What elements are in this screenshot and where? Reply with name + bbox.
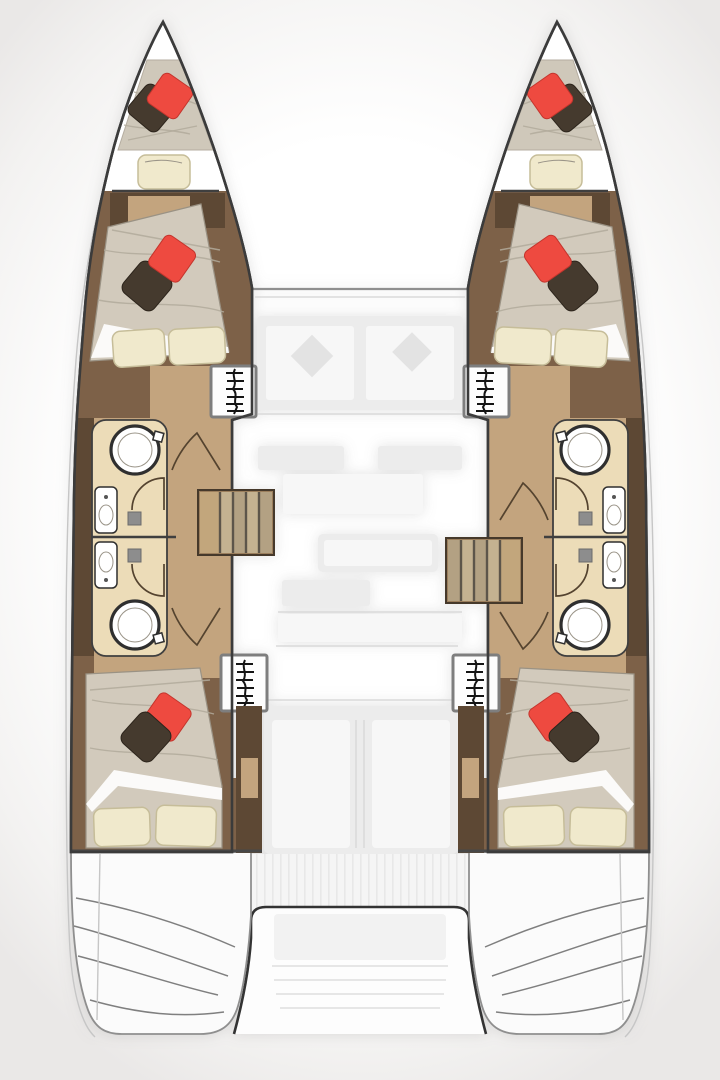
saloon-ghost <box>258 446 462 646</box>
forward-companionway-hatch <box>211 366 256 417</box>
aft-bench-ghost <box>274 914 446 960</box>
catamaran-floorplan: Catamaran interior layout floor plan, to… <box>0 0 720 1080</box>
cream-pillow <box>155 805 216 847</box>
shower-control <box>153 633 164 644</box>
port-stairs-to-saloon <box>198 490 274 555</box>
starboard-stairs-to-saloon <box>446 538 522 603</box>
cockpit-ghost <box>264 700 458 854</box>
toilet <box>128 512 141 525</box>
wardrobe <box>222 778 236 850</box>
cream-pillow <box>168 327 226 366</box>
aft-deck-ghost <box>234 854 486 1034</box>
cream-pillow <box>93 807 150 847</box>
aft-companionway-hatch <box>221 655 267 711</box>
toilet <box>128 549 141 562</box>
sink <box>95 487 117 533</box>
starboard-hull <box>453 22 660 1037</box>
cream-pillow <box>112 328 166 368</box>
bridgedeck-ghost <box>234 289 486 1034</box>
shower-control <box>153 431 164 442</box>
transom-ghost <box>71 852 251 1034</box>
bathrooms <box>92 420 176 656</box>
front-seating-ghost <box>257 316 463 414</box>
forward-cabin <box>90 193 229 368</box>
